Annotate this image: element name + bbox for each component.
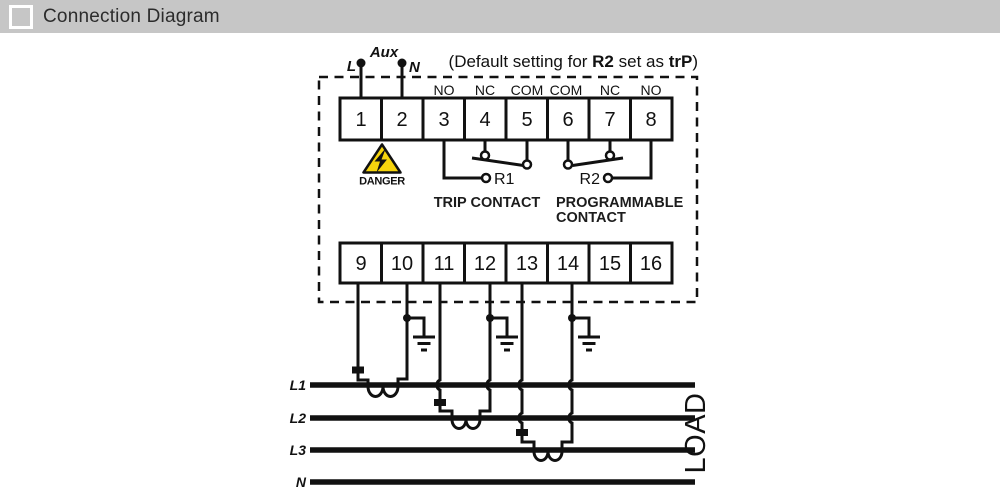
ground-bars (496, 337, 518, 350)
connection-diagram: (Default setting for R2 set as trP) L Au… (0, 33, 1000, 500)
r2-label: R2 (580, 171, 601, 188)
terminal-number: 9 (355, 253, 366, 275)
ct3-coil (534, 452, 562, 461)
note-prefix: (Default setting for (449, 52, 593, 71)
r2-description-line1: PROGRAMMABLE (556, 195, 684, 211)
title-square-icon (9, 5, 33, 29)
r2-programmable-contact: R2 PROGRAMMABLE CONTACT (556, 140, 684, 226)
terminal-number: 4 (479, 109, 490, 131)
label-nc-1: NC (475, 82, 495, 98)
danger-triangle-icon (364, 145, 401, 173)
terminal-number: 13 (516, 253, 538, 275)
wire-terminal10 (398, 283, 407, 386)
terminal-number: 15 (599, 253, 621, 275)
ground-icon (407, 318, 435, 350)
ct2-coil (452, 420, 480, 429)
header-bar: Connection Diagram (0, 0, 1000, 33)
relay-terminal-labels: NO NC COM COM NC NO (434, 82, 662, 98)
load-label: LOAD (680, 393, 712, 474)
aux-l-label: L (347, 58, 356, 75)
aux-l-terminal-dot (357, 59, 366, 68)
ct3-polarity-marker (516, 429, 528, 436)
ground-bars (578, 337, 600, 350)
r2-com-contact-point (564, 161, 572, 169)
ground-bars (413, 337, 435, 350)
terminal-number: 8 (645, 109, 656, 131)
label-com-1: COM (511, 82, 544, 98)
terminal-number: 12 (474, 253, 496, 275)
r2-switch-arm (573, 158, 624, 166)
note-middle: set as (614, 52, 669, 71)
r1-nc-contact-point (481, 152, 489, 160)
terminal-number: 7 (604, 109, 615, 131)
r2-description-line2: CONTACT (556, 210, 626, 226)
note-trp: trP (669, 52, 693, 71)
danger-symbol: DANGER (359, 145, 405, 188)
terminal-number: 6 (562, 109, 573, 131)
r2-no-contact-point (604, 174, 612, 182)
r1-switch-arm (472, 158, 524, 166)
phase-label-l3: L3 (290, 442, 307, 458)
aux-n-label: N (409, 59, 421, 76)
wire-terminal12 (480, 283, 490, 419)
terminal-number: 10 (391, 253, 413, 275)
r1-no-contact-point (482, 174, 490, 182)
r1-trip-contact: R1 TRIP CONTACT (434, 140, 541, 211)
aux-n-terminal-dot (398, 59, 407, 68)
terminal-number: 16 (640, 253, 662, 275)
terminal-number: 14 (557, 253, 579, 275)
terminal-number: 3 (438, 109, 449, 131)
r1-label: R1 (494, 171, 515, 188)
ground-icon (572, 318, 600, 350)
ct2-polarity-marker (434, 399, 446, 406)
terminal-row-bottom: 9 10 11 12 13 14 15 16 (340, 243, 672, 283)
terminal-number: 5 (521, 109, 532, 131)
terminal-number: 11 (434, 253, 455, 275)
default-setting-note: (Default setting for R2 set as trP) (449, 52, 698, 71)
label-com-2: COM (550, 82, 583, 98)
note-suffix: ) (692, 52, 698, 71)
phase-lines: L1 L2 L3 N (290, 377, 695, 490)
terminal-number: 1 (355, 109, 366, 131)
ct1-polarity-marker (352, 367, 364, 374)
note-r2: R2 (592, 52, 614, 71)
wire-terminal11 (437, 283, 452, 419)
phase-label-l1: L1 (290, 377, 307, 393)
wire-terminal14 (562, 283, 572, 451)
ground-icon (490, 318, 518, 350)
label-no-2: NO (641, 82, 662, 98)
phase-label-n: N (296, 474, 307, 490)
page-title: Connection Diagram (43, 6, 220, 28)
r1-com-contact-point (523, 161, 531, 169)
r1-description: TRIP CONTACT (434, 195, 541, 211)
danger-label: DANGER (359, 176, 405, 188)
wire-terminal13 (519, 283, 534, 451)
aux-label: Aux (369, 44, 399, 61)
label-nc-2: NC (600, 82, 620, 98)
label-no-1: NO (434, 82, 455, 98)
phase-label-l2: L2 (290, 410, 307, 426)
r2-nc-contact-point (606, 152, 614, 160)
terminal-row-top: 1 2 3 4 5 6 7 8 (340, 98, 672, 140)
ct1-coil (368, 387, 398, 397)
aux-supply: L Aux N (347, 44, 421, 98)
terminal-number: 2 (396, 109, 407, 131)
